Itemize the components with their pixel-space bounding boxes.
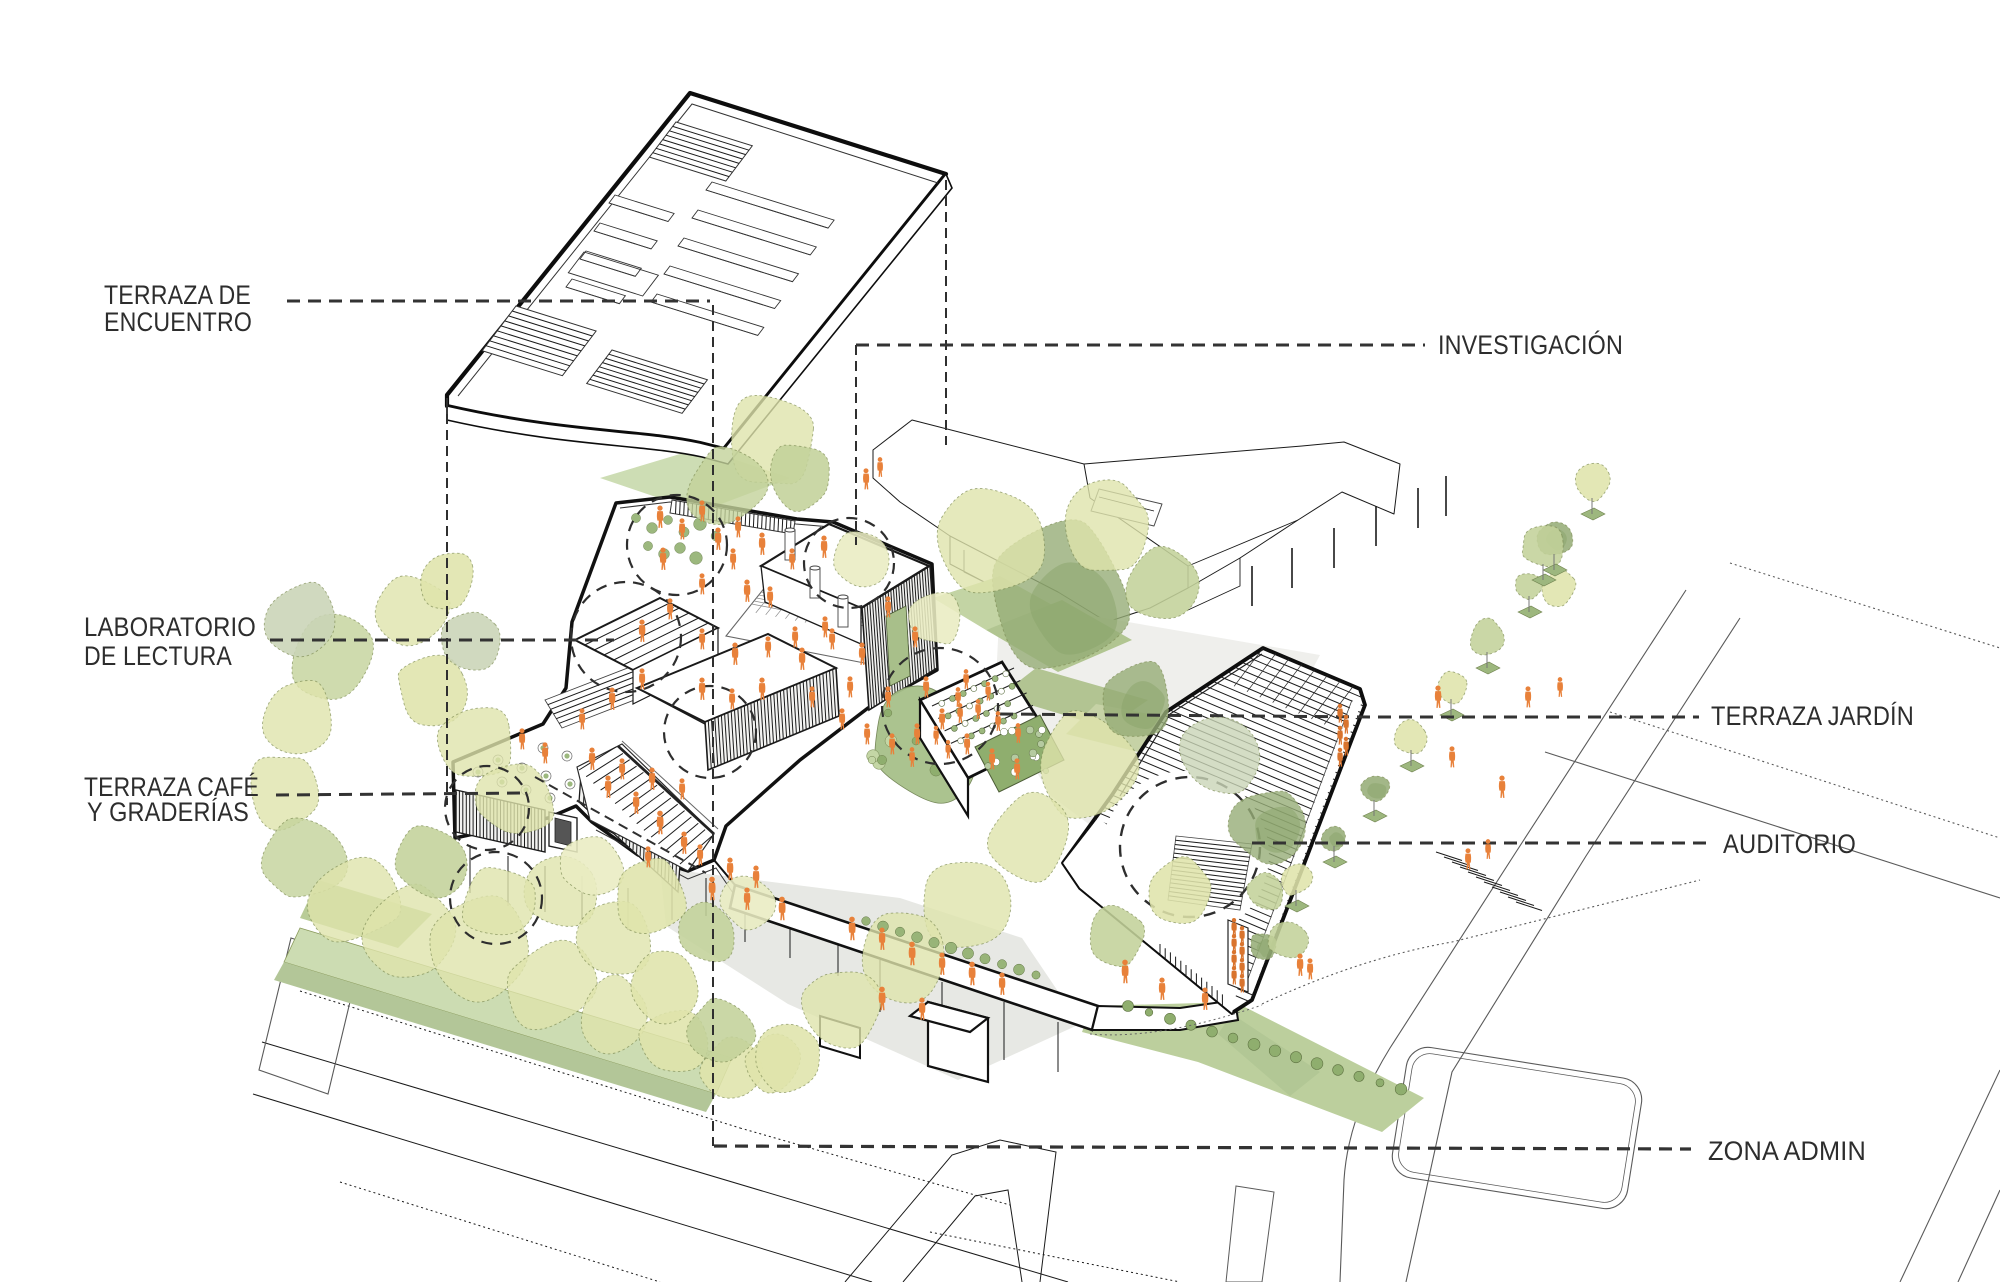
svg-text:LABORATORIO: LABORATORIO (84, 612, 256, 642)
svg-text:TERRAZA DE: TERRAZA DE (104, 280, 251, 310)
svg-text:TERRAZA JARDÍN: TERRAZA JARDÍN (1711, 701, 1914, 731)
svg-text:DE LECTURA: DE LECTURA (84, 641, 232, 671)
svg-text:ZONA ADMIN: ZONA ADMIN (1708, 1136, 1866, 1166)
svg-text:AUDITORIO: AUDITORIO (1723, 829, 1856, 859)
svg-text:ENCUENTRO: ENCUENTRO (104, 307, 252, 337)
svg-text:Y GRADERÍAS: Y GRADERÍAS (87, 797, 249, 827)
svg-text:INVESTIGACIÓN: INVESTIGACIÓN (1438, 330, 1623, 360)
